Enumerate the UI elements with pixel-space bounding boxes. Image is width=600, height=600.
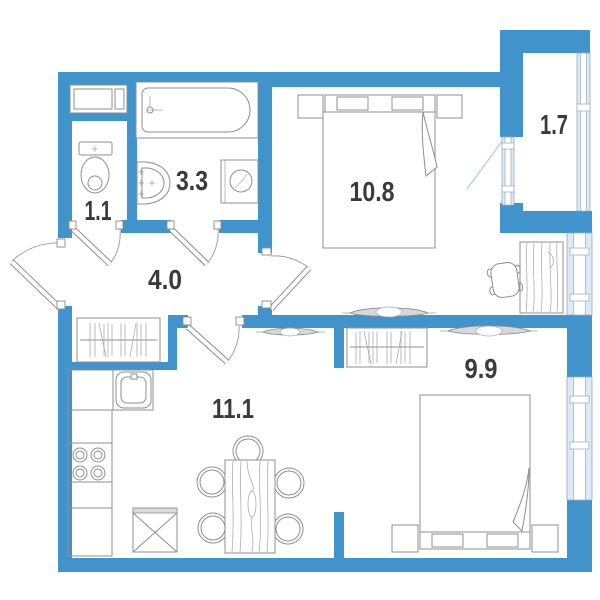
wc-furniture [70, 85, 127, 193]
wall-mid-horizontal [242, 315, 567, 328]
bedroom-top-furniture [298, 95, 563, 313]
wall-nook-bottom [68, 362, 168, 370]
desk-chair [486, 261, 523, 299]
bedroom-top-window [567, 233, 592, 315]
wall-bottom [58, 558, 592, 572]
nightstand [532, 525, 558, 552]
shelf-niche [70, 85, 127, 113]
fridge [133, 508, 177, 552]
room-label-hallway: 4.0 [148, 264, 182, 295]
bathroom-sink [137, 162, 170, 204]
balcony-window [577, 53, 590, 211]
hallway-wardrobe [77, 318, 160, 362]
wall-balcony-block [500, 203, 523, 233]
wall-right-corner [567, 500, 592, 572]
kitchen-furniture [68, 370, 304, 556]
bed-top [323, 95, 437, 248]
wall-right-mid [567, 315, 592, 377]
nightstand [392, 525, 418, 552]
balcony-door-swing [467, 140, 503, 189]
bedroom-bottom-furniture [347, 328, 558, 552]
bedroom-bottom-window [567, 377, 592, 500]
wall-bath-bedroom [258, 87, 272, 253]
wall-hall-north-a [121, 220, 171, 233]
room-label-balcony: 1.7 [540, 109, 568, 140]
room-label-bedroom-top: 10.8 [350, 176, 395, 207]
nightstand [298, 95, 323, 118]
wall-balcony-top [500, 30, 590, 53]
wc-door [69, 221, 123, 264]
kitchen-sink [116, 372, 151, 408]
bathtub [136, 82, 258, 138]
wall-kitchen-bedroom-upper [334, 328, 344, 368]
tv-symbol [256, 328, 325, 336]
balcony-door [467, 137, 514, 205]
nightstand [437, 95, 462, 118]
washing-machine [221, 160, 258, 203]
stove [73, 448, 105, 480]
room-label-bathroom: 3.3 [176, 165, 208, 196]
wall-balcony-bottom [523, 211, 592, 233]
kitchen-door [183, 317, 244, 362]
entry-door [12, 239, 65, 309]
room-label-wc: 1.1 [85, 195, 112, 226]
toilet [79, 142, 112, 193]
wall-left-lower [58, 306, 72, 572]
floor-plan-canvas: 1.1 3.3 4.0 10.8 1.7 11.1 9.9 [0, 0, 600, 600]
bed-bottom [420, 395, 530, 549]
wall-kitchen-bedroom-lower [334, 512, 344, 558]
floor-plan: 1.1 3.3 4.0 10.8 1.7 11.1 9.9 [0, 0, 600, 600]
wardrobe [347, 328, 427, 367]
desk [520, 242, 563, 313]
bedroom-top-door [262, 248, 309, 309]
dining-table [225, 460, 275, 553]
wall-niche [70, 113, 128, 121]
room-label-kitchen-living: 11.1 [212, 393, 254, 424]
room-label-bedroom-bottom: 9.9 [465, 353, 498, 384]
bathroom-door [167, 221, 221, 264]
wall-nook-right [168, 315, 177, 370]
